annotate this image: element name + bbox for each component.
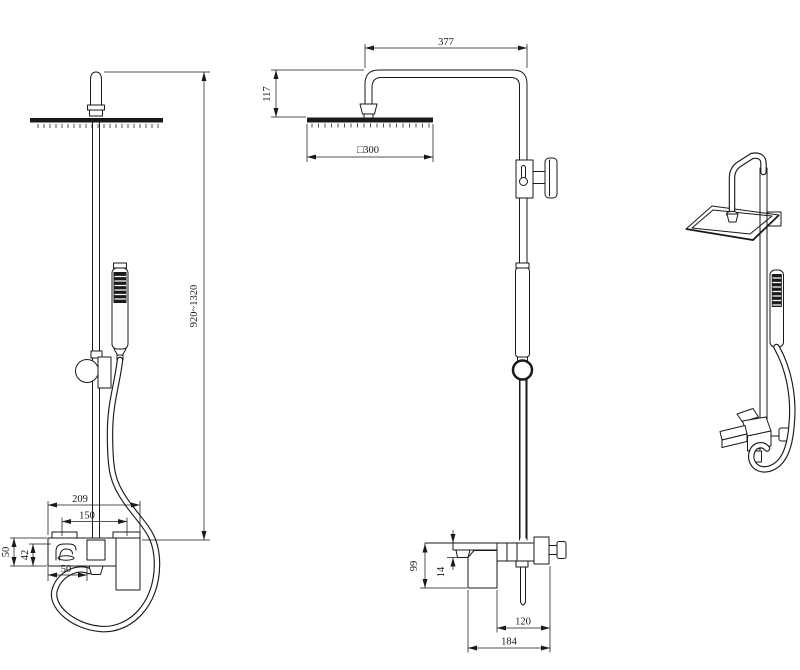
side-rain-head (307, 118, 433, 128)
side-diverter-knob (516, 158, 557, 198)
front-hand-shower (112, 263, 128, 360)
perspective-view (686, 156, 792, 470)
front-dimensions: 209 150 50 42 50 920~1320 (1, 72, 210, 581)
front-handshower-holder (76, 351, 112, 388)
dim-head-drop-label: 117 (262, 86, 273, 101)
shower-system-technical-drawing: 209 150 50 42 50 920~1320 (0, 0, 800, 670)
front-riser-pipe (88, 72, 105, 540)
dim-wall-to-pipe-label: 120 (515, 617, 531, 628)
front-rain-head (30, 118, 163, 128)
technical-drawing-page: 209 150 50 42 50 920~1320 (0, 0, 800, 670)
side-view: 377 117 □300 99 14 120 184 (262, 37, 566, 653)
dim-spout-offset-label: 50 (61, 564, 72, 575)
dim-height-range-label: 920~1320 (189, 285, 200, 327)
dim-arm-reach-label: 377 (438, 37, 454, 48)
side-arm-and-pipe (360, 70, 527, 540)
persp-riser-pipe (760, 168, 767, 450)
front-shower-hose (54, 360, 157, 629)
dim-center-width-label: 150 (79, 511, 95, 522)
dim-spout-height-label: 42 (20, 550, 31, 561)
persp-hand-shower (770, 270, 784, 347)
dim-wall-to-handle-label: 184 (501, 637, 518, 648)
dim-spout-drop-label: 14 (436, 566, 447, 577)
side-hand-shower (513, 263, 532, 538)
dim-head-size-label: □300 (357, 145, 379, 156)
dim-overall-width-label: 209 (72, 494, 88, 505)
dim-mixer-body-height-label: 99 (409, 561, 420, 572)
dim-body-height-label: 50 (1, 547, 12, 558)
front-view: 209 150 50 42 50 920~1320 (1, 72, 210, 629)
